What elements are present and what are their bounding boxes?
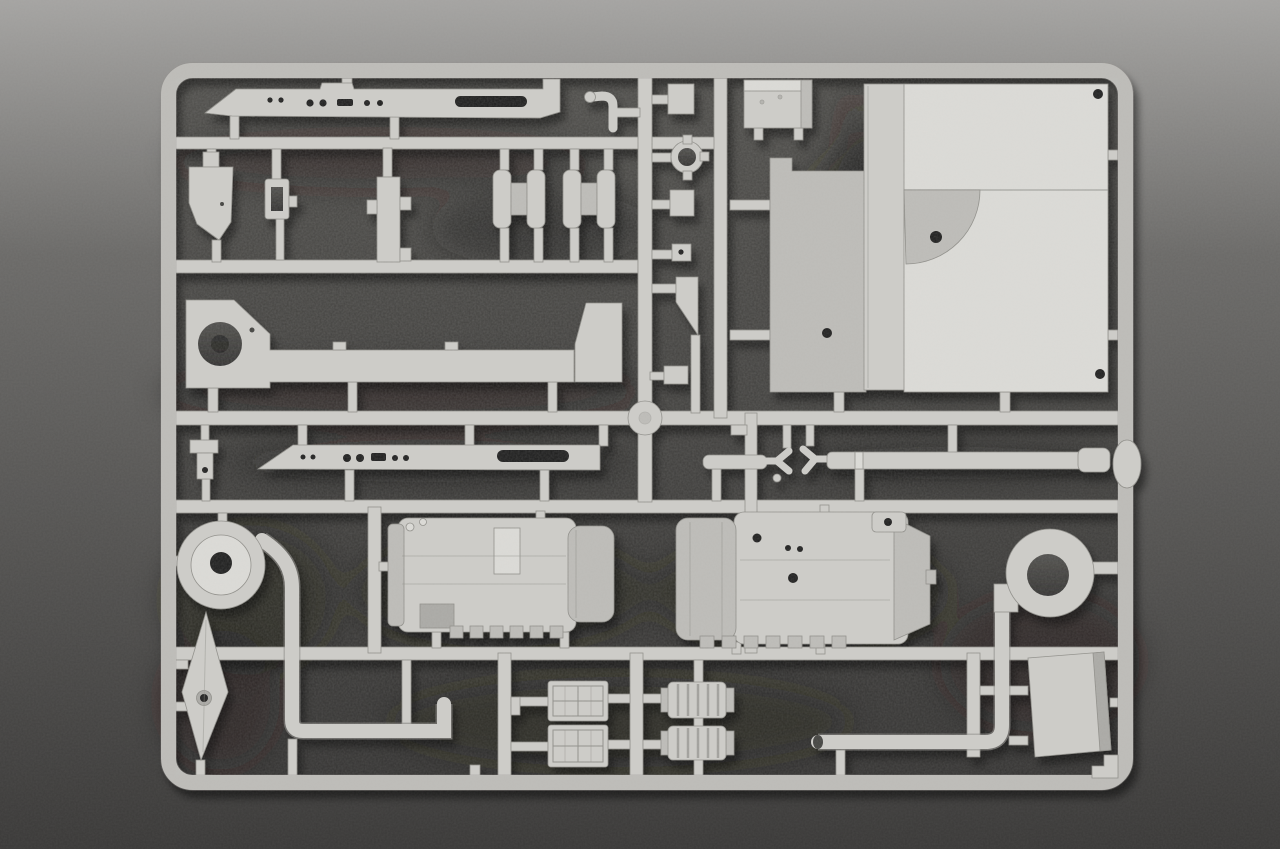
- sprue-photo: [0, 0, 1280, 849]
- sprue-photo-canvas: [0, 0, 1280, 849]
- photo-grain-texture: [0, 0, 1280, 849]
